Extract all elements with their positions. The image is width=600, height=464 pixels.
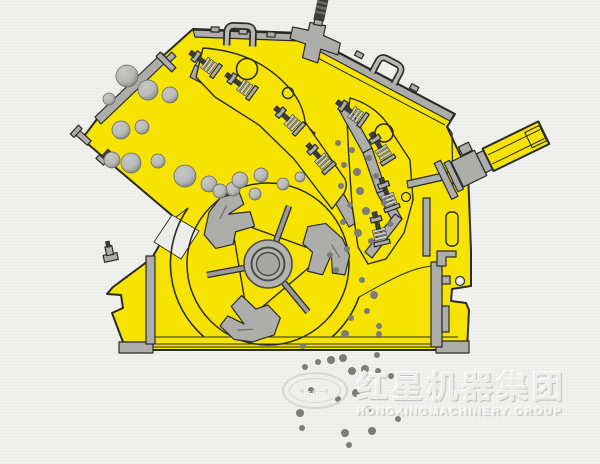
rock [116,65,138,87]
watermark-company-name-cn: 红星机器集团 [357,372,567,403]
dust-particle [341,162,347,168]
dust-particle [370,291,378,299]
leg-bolt [100,240,118,262]
rock [112,121,130,139]
dust-particle [299,425,305,431]
rock [162,87,178,103]
dust-particle [356,187,364,195]
rock [295,172,305,182]
dust-particle [300,343,306,349]
dust-particle [344,246,350,252]
rotor-shaft [257,253,280,276]
dust-particle [374,352,380,358]
watermark: +–+–+ 红星机器集团 HONGXINGMACHINERY GROUP [282,372,567,418]
right-wall-channel [431,262,442,347]
dust-particle [353,168,361,176]
dust-particle [327,356,335,364]
dust-particle [359,277,365,283]
dust-particle [315,359,321,365]
dust-particle [368,427,376,435]
dust-particle [366,155,372,161]
dust-particle [349,147,355,153]
dust-particle [340,219,346,225]
dust-particle [341,429,349,437]
dust-particle [338,183,344,189]
rock [103,93,115,105]
dust-particle [387,221,393,227]
watermark-company-name-en: HONGXINGMACHINERY GROUP [357,406,567,418]
frame-hole [456,277,465,286]
rock [277,178,289,190]
rock [121,153,141,173]
rock [135,120,149,134]
dust-particle [354,229,362,237]
hongxing-logo-glyphs: +–+–+ [289,378,341,403]
rock [151,154,165,168]
watermark-text: 红星机器集团 HONGXINGMACHINERY GROUP [357,372,567,418]
rock [232,172,248,188]
rock [249,188,261,200]
rock [104,152,120,168]
dust-particle [341,330,349,338]
dust-particle [373,173,379,179]
dust-particle [376,323,382,329]
dust-particle [348,315,354,321]
left-wall-channel [146,256,155,344]
rock [138,80,158,100]
dust-particle [346,442,352,448]
dust-particle [362,207,370,215]
dust-particle [327,252,333,258]
rock [213,184,227,198]
dust-particle [347,202,353,208]
crusher-diagram: +–+–+ 红星机器集团 HONGXINGMACHINERY GROUP [0,0,600,464]
dust-particle [302,364,308,370]
dust-particle [381,200,387,206]
dust-particle [333,267,339,273]
rock [174,165,196,187]
dust-particle [364,308,370,314]
dust-particle [376,331,382,337]
dust-particle [339,354,347,362]
dust-particle [368,238,374,244]
dust-particle [335,140,341,146]
hongxing-logo-icon: +–+–+ [282,372,348,409]
rock [254,168,268,182]
